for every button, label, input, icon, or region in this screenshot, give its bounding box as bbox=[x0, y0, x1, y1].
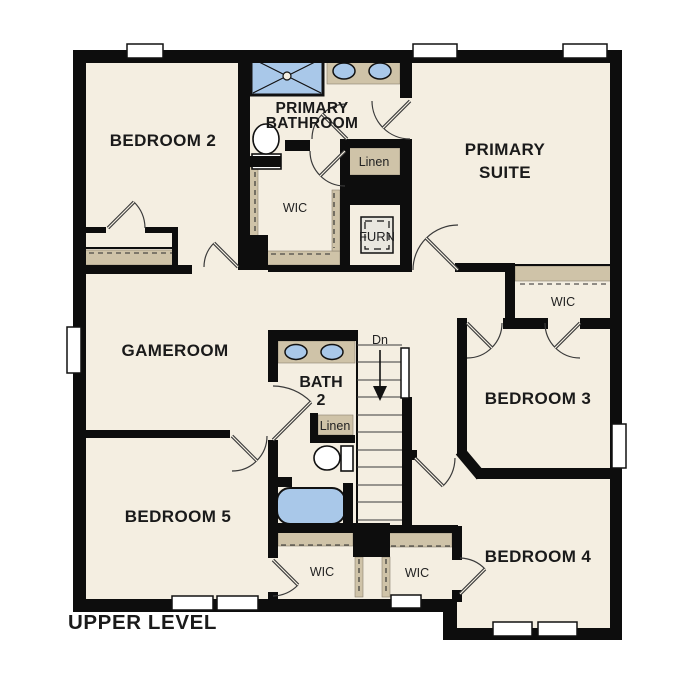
room-label-primary-suite-line2: SUITE bbox=[479, 163, 531, 182]
primary-sink-left bbox=[333, 63, 355, 79]
page-title: UPPER LEVEL bbox=[68, 611, 217, 634]
bath2-toilet bbox=[314, 446, 353, 471]
primary-wic-shelf-right bbox=[332, 190, 340, 251]
closet-label-wic-primary: WIC bbox=[283, 201, 307, 215]
window bbox=[612, 424, 626, 468]
bedroom5-wic-shelf bbox=[278, 532, 353, 546]
window bbox=[563, 44, 607, 58]
window bbox=[413, 44, 457, 58]
room-label-bath2-line2: 2 bbox=[317, 392, 326, 409]
floor-plan-drawing: BEDROOM 2 PRIMARY BATHROOM PRIMARY SUITE… bbox=[0, 0, 687, 687]
window bbox=[538, 622, 577, 636]
bathtub bbox=[277, 488, 345, 524]
closet-label-wic-bedroom5: WIC bbox=[310, 565, 334, 579]
stair-handrail bbox=[401, 348, 409, 398]
window bbox=[493, 622, 532, 636]
window bbox=[127, 44, 163, 58]
bedroom2-closet-shelf bbox=[76, 250, 175, 265]
room-label-bedroom4: BEDROOM 4 bbox=[485, 547, 592, 566]
window bbox=[172, 596, 213, 610]
room-label-primary-suite-line1: PRIMARY bbox=[465, 140, 546, 159]
utility-label-furnace: FURN bbox=[359, 229, 395, 244]
bath2-sink-left bbox=[285, 345, 307, 360]
room-label-bedroom2: BEDROOM 2 bbox=[110, 131, 217, 150]
stairs-label-down: Dn bbox=[372, 333, 388, 347]
room-label-gameroom: GAMEROOM bbox=[121, 341, 228, 360]
window bbox=[217, 596, 258, 610]
closet-label-wic-bedroom3: WIC bbox=[551, 295, 575, 309]
shower-drain bbox=[283, 72, 291, 80]
room-label-bedroom3: BEDROOM 3 bbox=[485, 389, 592, 408]
window bbox=[391, 595, 421, 608]
bedroom4-wic-shelf bbox=[388, 533, 452, 547]
room-label-primary-bathroom-line2: BATHROOM bbox=[266, 115, 359, 132]
exterior-wall-right bbox=[610, 50, 622, 640]
primary-sink-right bbox=[369, 63, 391, 79]
floor-plan-page: BEDROOM 2 PRIMARY BATHROOM PRIMARY SUITE… bbox=[0, 0, 687, 687]
room-label-bedroom5: BEDROOM 5 bbox=[125, 507, 232, 526]
closet-label-linen-bath2: Linen bbox=[320, 419, 351, 433]
room-label-bath2-line1: BATH bbox=[299, 374, 342, 391]
primary-wic-shelf-bottom bbox=[258, 251, 340, 265]
bedroom3-wic-shelf bbox=[515, 266, 612, 281]
closet-label-wic-bedroom4: WIC bbox=[405, 566, 429, 580]
bath2-sink-right bbox=[321, 345, 343, 360]
closet-label-linen-primary: Linen bbox=[359, 155, 390, 169]
window bbox=[67, 327, 81, 373]
